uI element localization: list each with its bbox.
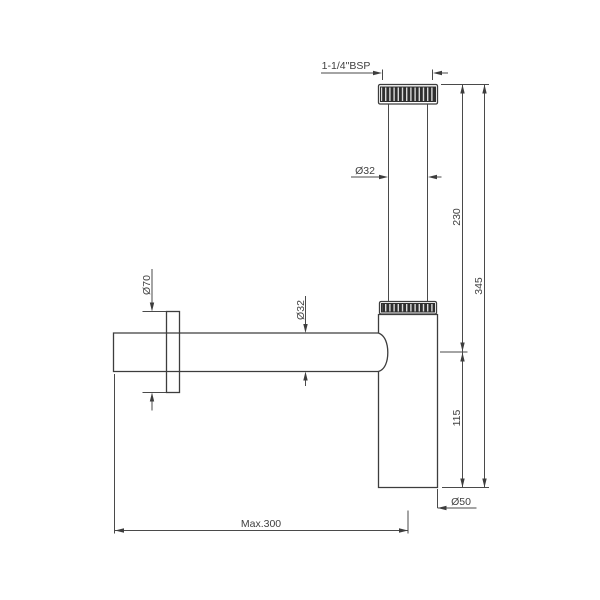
arrowhead: [303, 372, 307, 381]
arrowhead: [115, 528, 124, 532]
arrowhead: [433, 71, 442, 75]
horizontal-waste-pipe: [114, 333, 379, 372]
arrowhead: [373, 71, 382, 75]
top-compression-nut: [379, 85, 438, 105]
bottle-trap-technical-drawing: 1-1/4"BSP Ø32 230 345 Ø32 Ø70 115 Ø50 Ma…: [0, 0, 600, 600]
arrowhead: [150, 393, 154, 402]
label-body-height: 115: [451, 409, 463, 426]
top-nut-knurling: [381, 87, 436, 102]
arrowhead: [399, 528, 408, 532]
waste-pipe-path: [114, 333, 379, 372]
arrowhead: [379, 175, 388, 179]
label-body-diameter: Ø50: [451, 496, 471, 508]
arrowhead: [428, 175, 437, 179]
arrowhead: [303, 324, 307, 333]
arrowhead: [150, 303, 154, 312]
arrowhead: [460, 85, 464, 94]
product-outline: [114, 85, 438, 488]
label-tailpiece-diameter: Ø32: [355, 165, 375, 177]
label-max-horizontal-reach: Max.300: [241, 518, 281, 530]
arrowhead: [460, 479, 464, 488]
arrowhead: [460, 353, 464, 362]
trap-body-path: [379, 315, 438, 488]
arrowhead: [482, 479, 486, 488]
label-overall-height: 345: [473, 277, 485, 295]
vertical-tailpiece: [389, 104, 428, 301]
bottom-compression-nut: [380, 302, 437, 315]
label-waste-pipe-diameter: Ø32: [295, 300, 307, 320]
label-flange-diameter: Ø70: [141, 275, 153, 295]
wall-flange: [167, 312, 180, 393]
arrowhead: [482, 85, 486, 94]
technical-drawing-page: 1-1/4"BSP Ø32 230 345 Ø32 Ø70 115 Ø50 Ma…: [0, 0, 600, 600]
label-thread-size: 1-1/4"BSP: [322, 60, 371, 72]
arrowhead: [460, 343, 464, 352]
label-tailpiece-length: 230: [451, 208, 463, 226]
bottom-nut-knurling: [382, 304, 435, 313]
arrowhead: [438, 506, 447, 510]
trap-body: [379, 315, 438, 488]
dimension-labels: 1-1/4"BSP Ø32 230 345 Ø32 Ø70 115 Ø50 Ma…: [141, 60, 485, 530]
